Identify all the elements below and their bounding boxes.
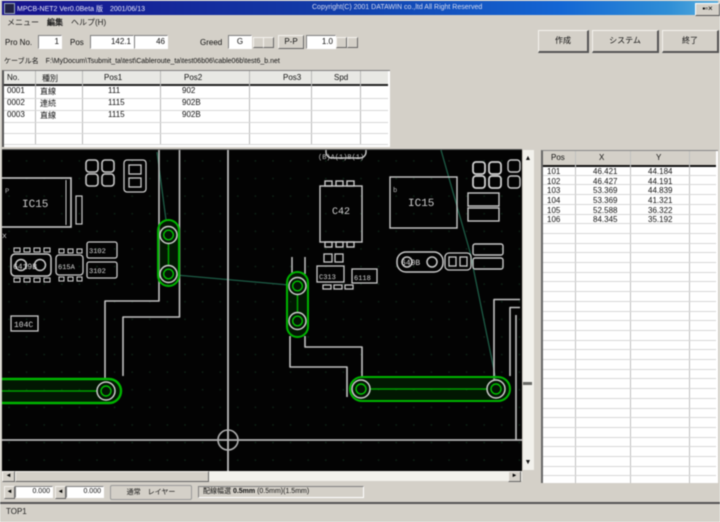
svg-text:104C: 104C bbox=[14, 321, 33, 330]
svg-text:3102: 3102 bbox=[89, 268, 106, 276]
svg-text:3102: 3102 bbox=[89, 248, 106, 256]
svg-text:640B: 640B bbox=[401, 259, 420, 268]
svg-text:P: P bbox=[5, 188, 9, 196]
svg-text:b: b bbox=[393, 186, 397, 195]
svg-text:C42: C42 bbox=[332, 207, 350, 218]
svg-text:x: x bbox=[2, 232, 7, 241]
svg-text:IC15: IC15 bbox=[22, 199, 48, 211]
svg-text:IC15: IC15 bbox=[408, 198, 434, 210]
svg-text:6419B: 6419B bbox=[13, 263, 37, 272]
svg-text:(B)A(1)B(1): (B)A(1)B(1) bbox=[318, 153, 364, 162]
svg-text:C313: C313 bbox=[319, 274, 336, 282]
svg-text:6118: 6118 bbox=[354, 275, 371, 283]
svg-text:615A: 615A bbox=[58, 264, 76, 272]
